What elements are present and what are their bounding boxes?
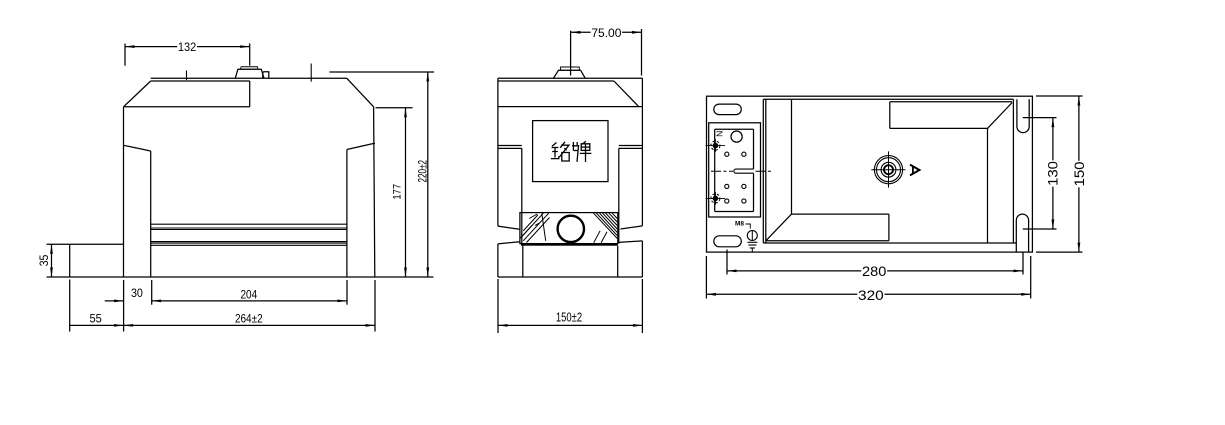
svg-text:30: 30 [131, 286, 143, 300]
svg-text:N: N [714, 131, 724, 137]
svg-text:130: 130 [1045, 161, 1060, 186]
svg-text:150±2: 150±2 [556, 309, 582, 324]
svg-text:35: 35 [37, 255, 51, 267]
svg-text:264±2: 264±2 [235, 311, 263, 325]
svg-text:204: 204 [240, 288, 257, 302]
svg-text:220±2: 220±2 [415, 160, 429, 183]
svg-text:55: 55 [89, 312, 101, 326]
svg-text:150: 150 [1072, 161, 1087, 186]
svg-text:177: 177 [391, 184, 403, 200]
svg-text:75.00: 75.00 [591, 26, 621, 40]
svg-text:M8: M8 [735, 221, 744, 228]
svg-text:280: 280 [862, 264, 887, 279]
svg-text:320: 320 [858, 288, 884, 303]
svg-text:132: 132 [178, 40, 197, 54]
